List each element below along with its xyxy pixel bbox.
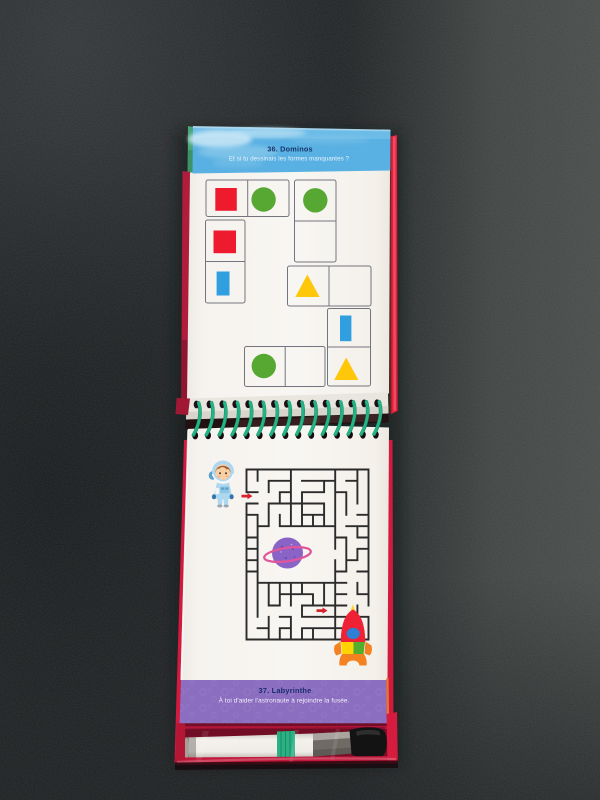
svg-text:37. Labyrinthe: 37. Labyrinthe	[259, 686, 312, 695]
svg-text:36. Dominos: 36. Dominos	[267, 145, 313, 154]
svg-text:Et si tu dessinais les formes: Et si tu dessinais les formes manquantes…	[229, 156, 350, 163]
svg-text:À toi d'aider l'astronaute à r: À toi d'aider l'astronaute à rejoindre l…	[219, 696, 350, 705]
